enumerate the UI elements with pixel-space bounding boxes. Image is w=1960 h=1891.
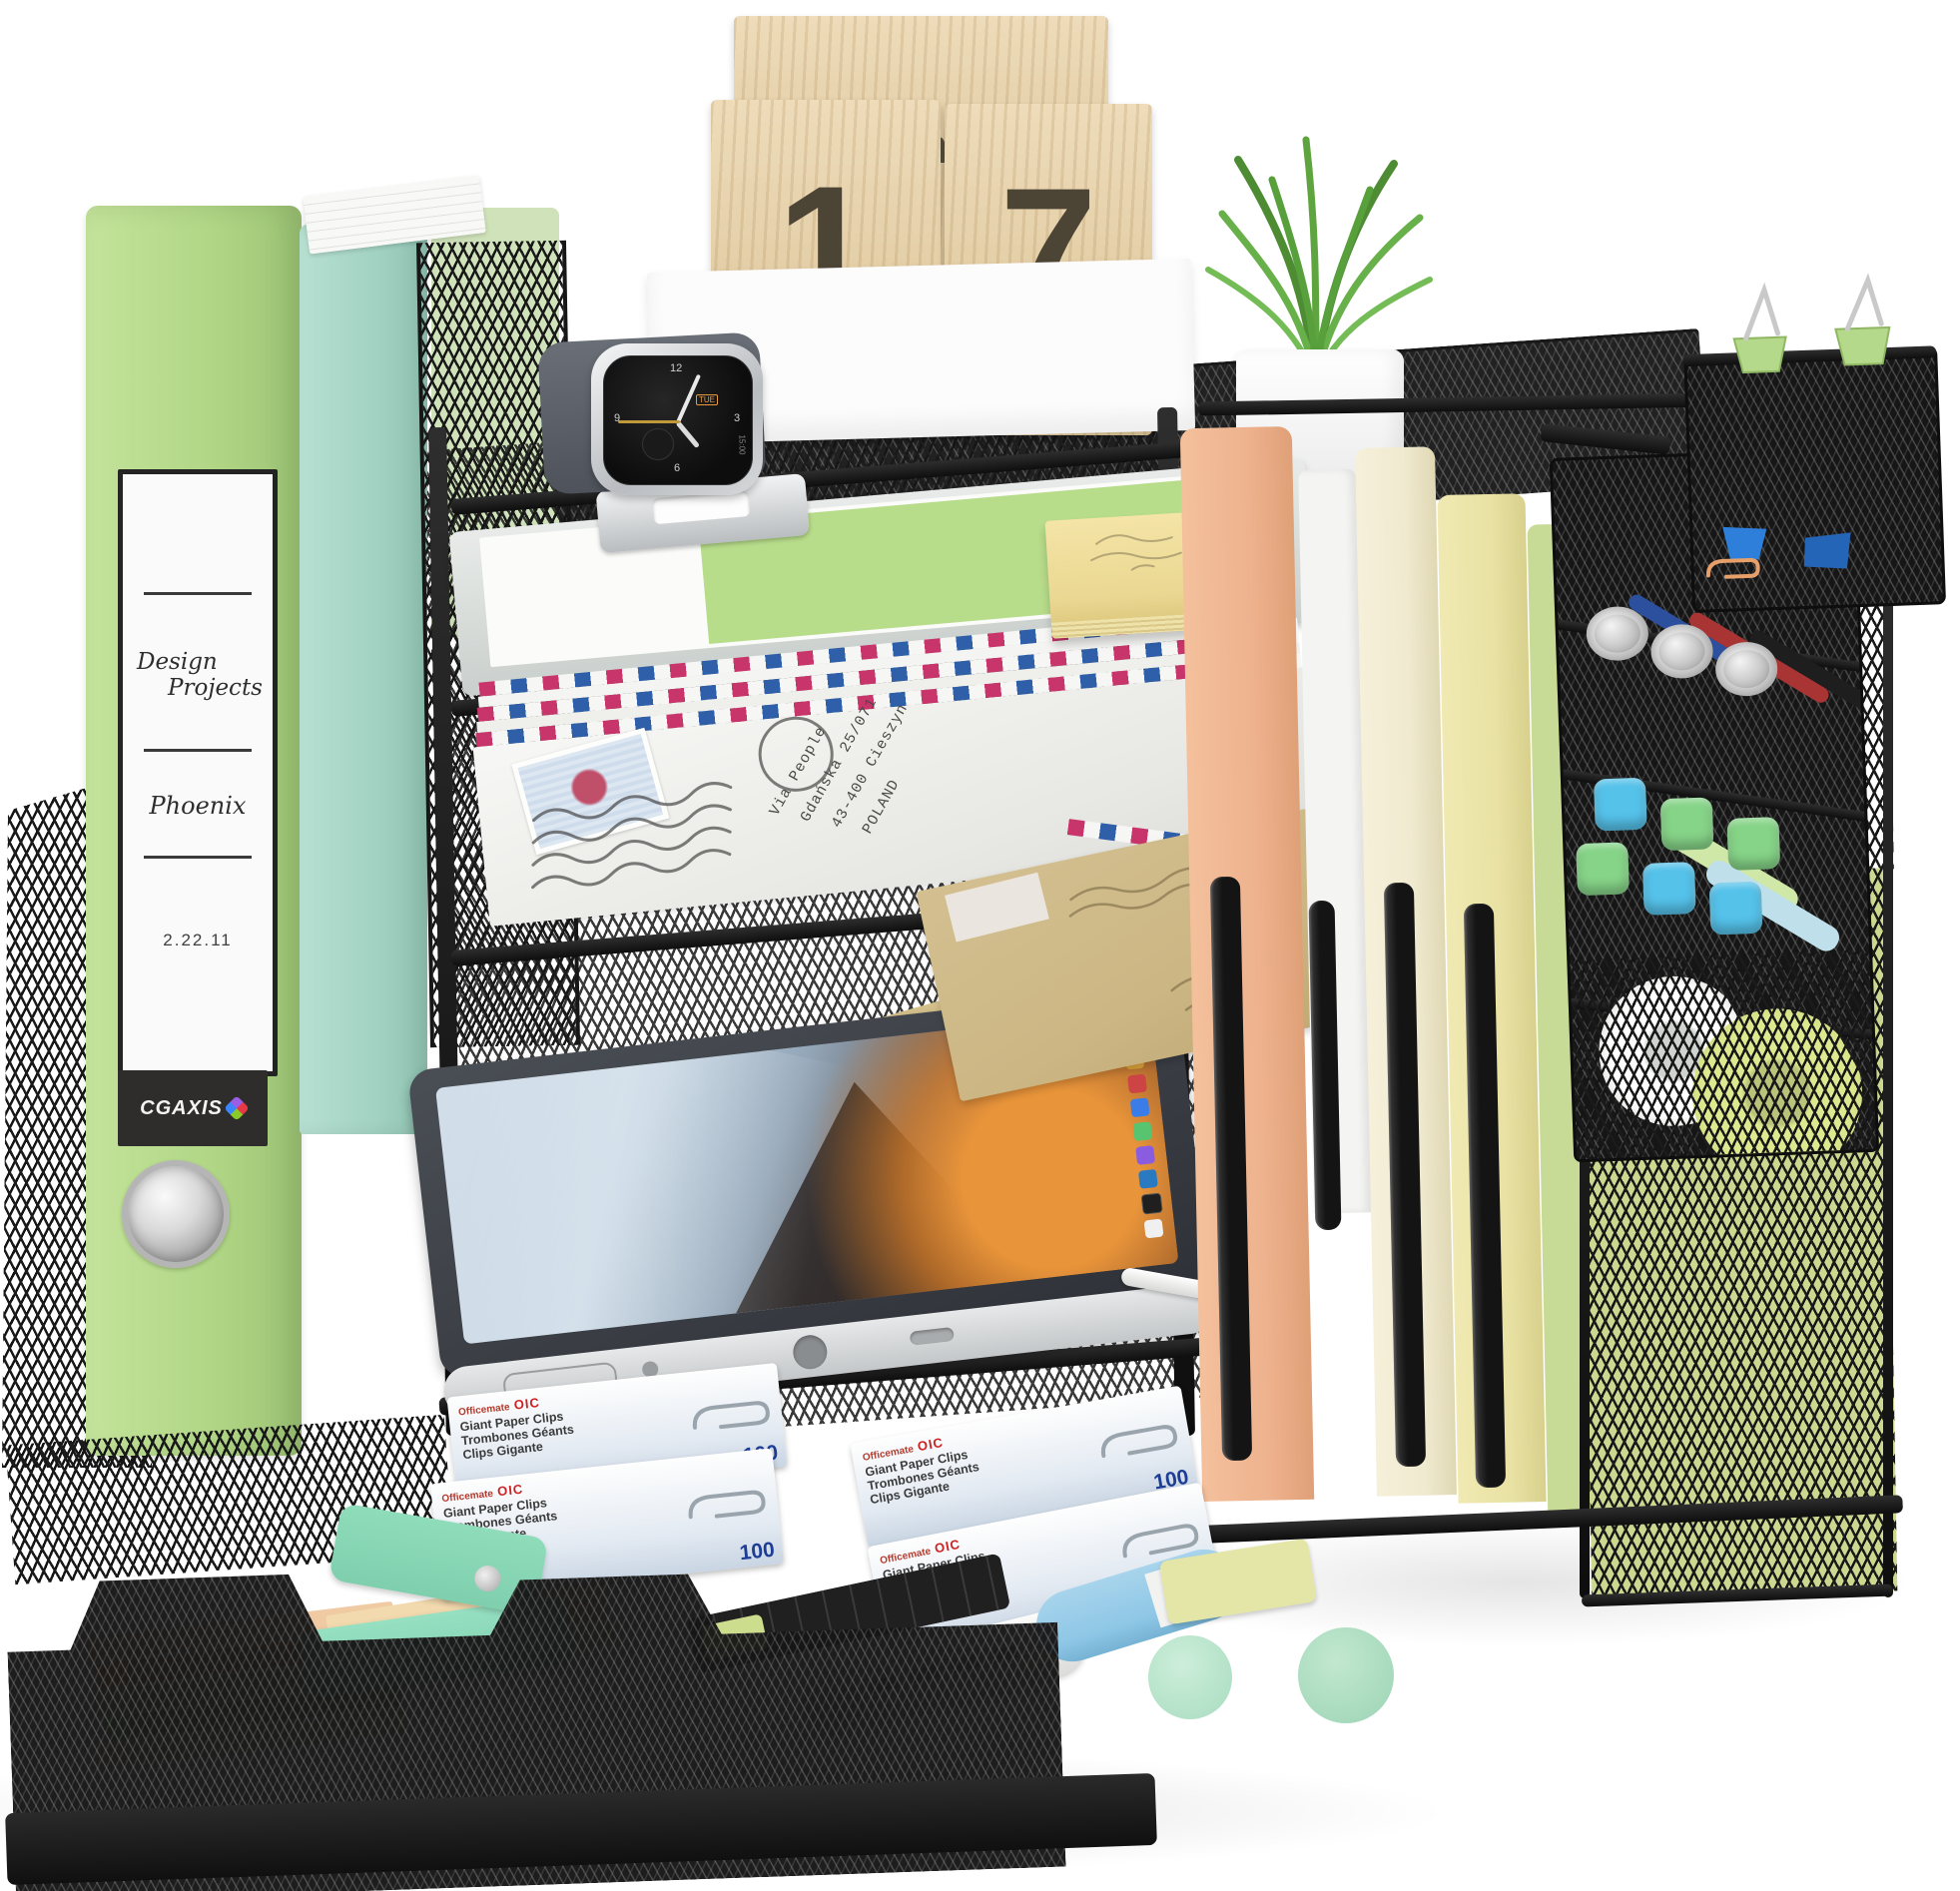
marker-cap-green (1726, 817, 1780, 871)
pen-cap-chrome (1714, 641, 1778, 697)
clip-box-brand-short: OIC (496, 1482, 524, 1500)
watch-subdial (642, 428, 674, 460)
green-binder-clips (1683, 266, 1937, 394)
watch-face: 12 3 6 9 TUE 15:00 (603, 355, 753, 485)
watch-day-complication: TUE (696, 394, 718, 405)
binder-brand-logo-icon (224, 1095, 249, 1120)
binder-label-line3: Phoenix (150, 792, 247, 820)
binder-brand-band: CGAXIS (118, 1070, 268, 1146)
tablet-trackpad-circle (792, 1333, 830, 1371)
marker-cap-blue (1594, 778, 1647, 832)
blue-binder-clip (1803, 532, 1852, 570)
binder-teal (300, 224, 427, 1134)
marker-cap-green (1576, 842, 1630, 896)
watch-mark-12: 12 (670, 362, 682, 374)
label-divider (144, 592, 252, 595)
binder-label-line2: Projects (168, 675, 273, 701)
dock-icon (1138, 1169, 1158, 1189)
binder-finger-ring (122, 1160, 230, 1268)
caddy-front-mesh-overlay (1570, 949, 1876, 1159)
marker-cap-green (1660, 797, 1714, 851)
label-divider (144, 749, 252, 752)
dock-icon (1130, 1097, 1150, 1117)
label-divider (144, 856, 252, 859)
watch-mark-6: 6 (674, 462, 680, 474)
binder-spine-label: Design Projects Phoenix 2.22.11 (118, 469, 278, 1076)
marker-cap-blue (1709, 882, 1763, 936)
dock-icon (1135, 1145, 1155, 1165)
pen-cap-chrome (1586, 606, 1649, 662)
paper-clip-graphic (680, 1479, 774, 1528)
clip-box-brand-short: OIC (513, 1395, 541, 1413)
tablet-port (910, 1327, 955, 1346)
mint-cap-round (1298, 1627, 1394, 1723)
dock-icon (1132, 1121, 1152, 1141)
dock-icon (1144, 1219, 1164, 1239)
mint-cap-round (1148, 1635, 1232, 1719)
watch-hour-hand (676, 420, 700, 448)
watch-second-hand (618, 420, 680, 423)
binder-clip-basket (1683, 346, 1946, 613)
paper-clip-graphic (684, 1389, 778, 1438)
smartwatch: 12 3 6 9 TUE 15:00 (541, 329, 771, 499)
binder-brand-text: CGAXIS (140, 1097, 223, 1120)
pen-cap-chrome (1650, 623, 1714, 679)
binder-label-line1: Design (123, 649, 218, 675)
watch-mark-3: 3 (734, 412, 740, 424)
orange-paper-clip (1701, 552, 1762, 584)
dock-icon (1141, 1192, 1163, 1214)
dock-icon (1127, 1073, 1147, 1093)
plant-grass (1166, 118, 1466, 387)
binder-label-date: 2.22.11 (163, 931, 232, 950)
caddy-hook-bar (1540, 423, 1670, 454)
desk-organizer-product-photo: November 1 7 12 3 6 9 TUE 15:0 (0, 0, 1960, 1891)
marker-cap-blue (1642, 862, 1696, 916)
watch-time-label: 15:00 (738, 434, 747, 454)
clip-box-quantity: 100 (739, 1539, 776, 1567)
side-pen-caddy (1535, 410, 1960, 1203)
